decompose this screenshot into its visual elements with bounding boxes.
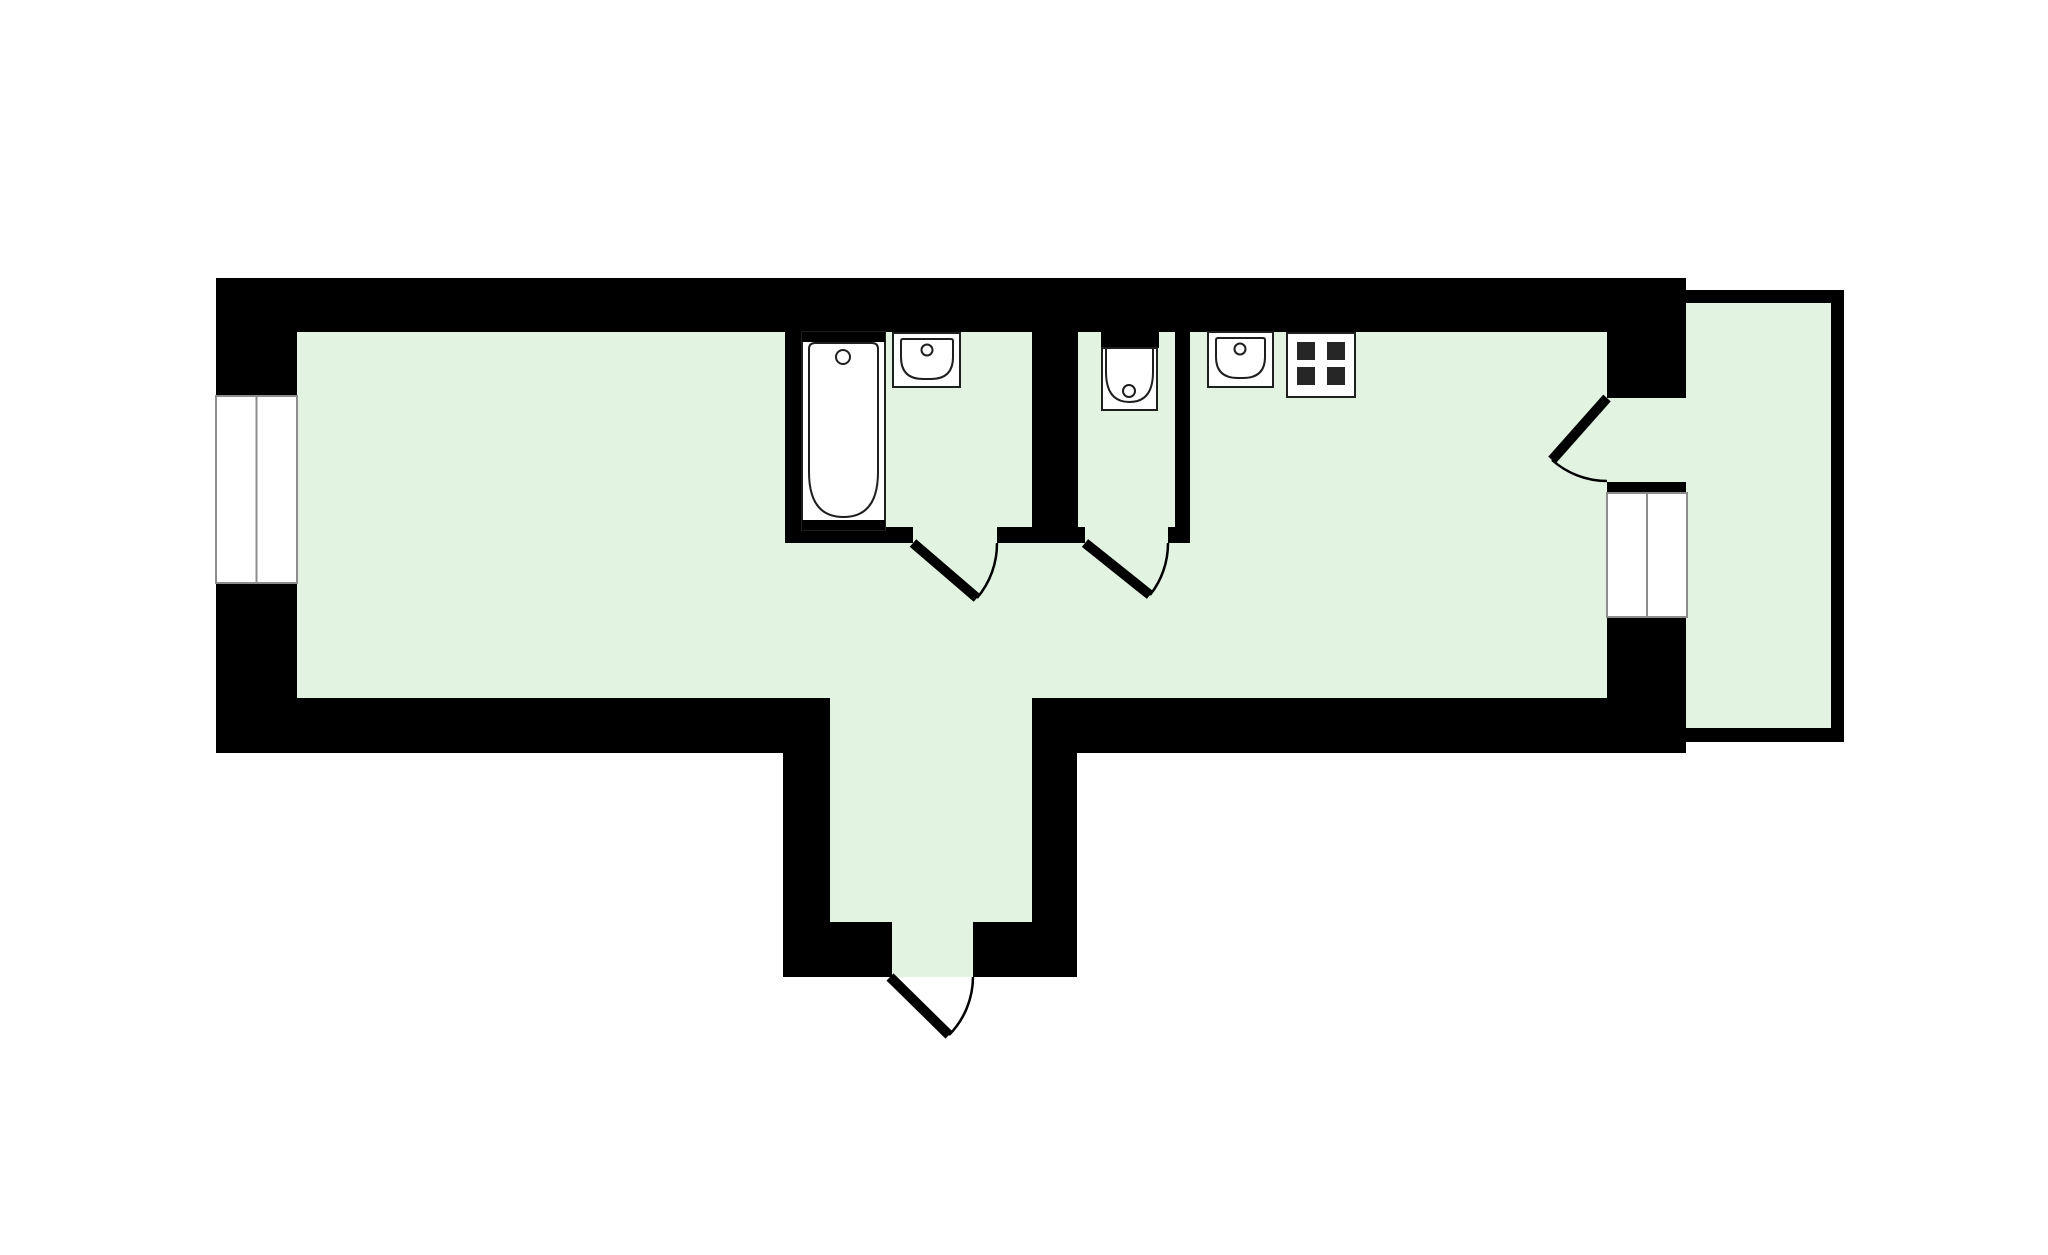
wc-wall-bottom-left [1078, 527, 1085, 543]
balcony-wall-top [1686, 290, 1844, 303]
right-wall-upper [1607, 278, 1686, 398]
bathtub-bottom-band [802, 520, 885, 530]
floor-plan [0, 0, 2048, 1255]
balcony-wall-bottom [1686, 728, 1844, 742]
right-wall-lower [1607, 617, 1686, 753]
floor-plan-page [0, 0, 2048, 1255]
left-wall-upper [216, 278, 297, 396]
bathroom-wall-bottom-right [997, 527, 1032, 543]
stove-burner-top-right [1327, 342, 1345, 360]
entry-door-swing [949, 977, 973, 1035]
kitchen-sink-faucet [1235, 344, 1246, 355]
wc-kitchen-wall [1175, 332, 1190, 543]
toilet-flush-button [1123, 385, 1135, 397]
vestibule-step-right [973, 922, 1077, 977]
toilet-niche-wall [1101, 332, 1159, 348]
stove-burner-bottom-left [1297, 367, 1315, 385]
vestibule-step-left [783, 922, 892, 977]
bathroom-sink-faucet [922, 345, 933, 356]
bathtub-drain [836, 350, 850, 364]
entry-door-leaf [890, 977, 949, 1035]
bottom-wall-left [216, 698, 830, 753]
bathtub-basin [809, 343, 878, 517]
stove-burner-top-left [1297, 342, 1315, 360]
top-wall [216, 278, 1686, 332]
balcony-doorway-floor [1607, 398, 1690, 482]
bottom-wall-right [1032, 698, 1686, 753]
balcony-floor [1686, 303, 1831, 728]
stove-burner-bottom-right [1327, 367, 1345, 385]
bathtub-top-band [802, 332, 885, 342]
bathroom-wc-wall [1032, 332, 1078, 543]
wc-wall-bottom-right [1168, 527, 1190, 543]
apartment-floor [297, 332, 1607, 977]
balcony-wall-right [1831, 290, 1844, 742]
bathroom-wall-left [785, 332, 802, 543]
right-wall-mid [1607, 482, 1686, 493]
